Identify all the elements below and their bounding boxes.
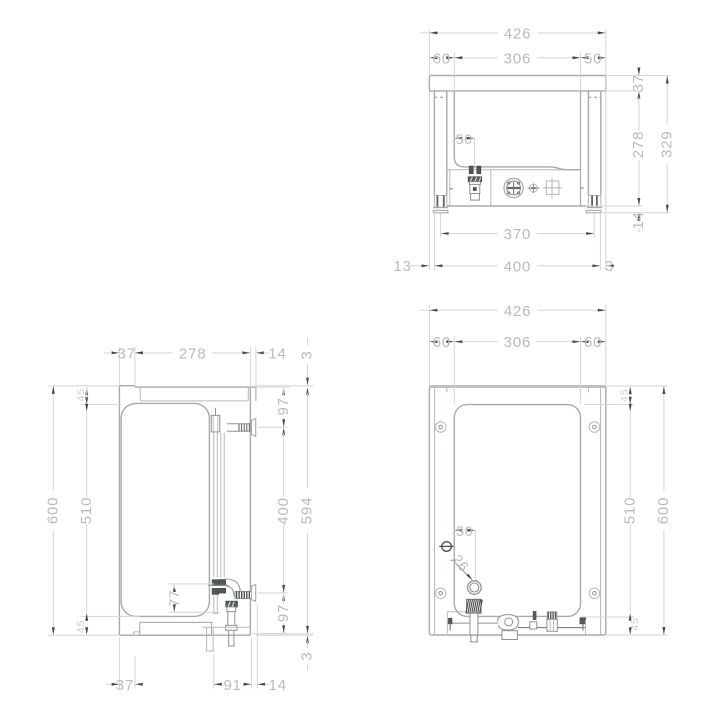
svg-text:400: 400 [275,497,292,524]
svg-text:370: 370 [504,226,531,243]
svg-text:594: 594 [299,497,316,524]
svg-text:37: 37 [630,74,647,92]
svg-text:14: 14 [268,346,286,363]
svg-text:329: 329 [658,130,675,157]
svg-text:37: 37 [117,346,135,363]
svg-text:426: 426 [504,26,531,43]
svg-text:14: 14 [269,677,287,694]
svg-text:97: 97 [275,604,292,622]
svg-text:306: 306 [504,50,531,67]
svg-text:45: 45 [619,389,631,402]
svg-text:50: 50 [456,523,473,539]
svg-text:510: 510 [78,497,95,524]
svg-text:600: 600 [655,497,672,524]
svg-text:97: 97 [275,397,292,415]
svg-text:278: 278 [630,131,647,158]
svg-text:37: 37 [116,677,134,694]
svg-text:60: 60 [584,334,602,351]
svg-text:510: 510 [621,497,638,524]
svg-text:60: 60 [433,334,451,351]
svg-text:600: 600 [45,497,62,524]
svg-text:278: 278 [179,346,206,363]
svg-text:50: 50 [456,131,473,147]
svg-text:306: 306 [504,334,531,351]
svg-text:45: 45 [629,617,641,630]
svg-text:3: 3 [299,350,316,359]
svg-text:91: 91 [224,677,242,694]
svg-text:45: 45 [75,620,87,633]
svg-text:60: 60 [433,50,451,67]
svg-text:426: 426 [504,303,531,320]
svg-text:3: 3 [299,651,316,660]
svg-text:50: 50 [584,50,602,67]
svg-text:3: 3 [605,258,614,275]
svg-text:13: 13 [393,258,411,275]
svg-text:400: 400 [504,258,531,275]
svg-text:14: 14 [630,211,647,229]
svg-text:45: 45 [75,388,87,401]
